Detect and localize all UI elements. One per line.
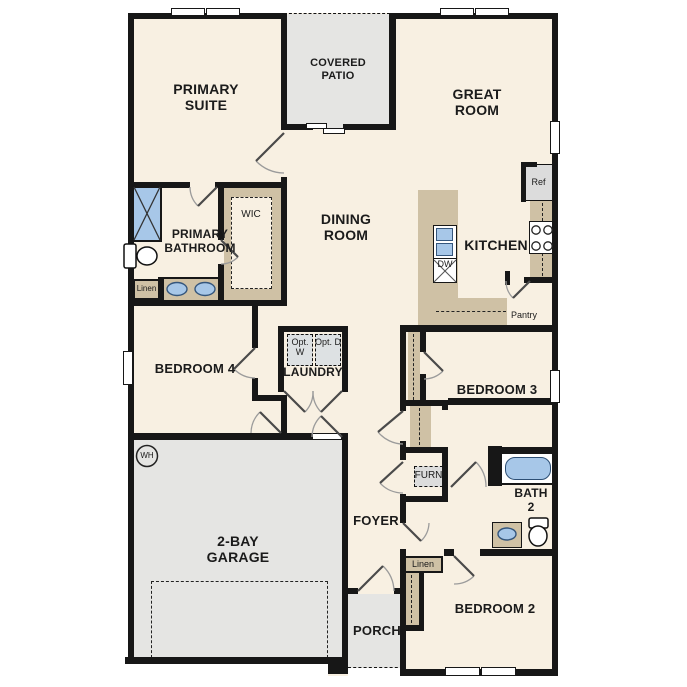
label-bath2: BATH 2	[513, 487, 549, 515]
label-linen-bath: Linen	[133, 284, 160, 293]
label-bedroom3: BEDROOM 3	[441, 383, 553, 398]
label-primary-suite: PRIMARY SUITE	[166, 81, 246, 113]
toilet-icon-bath2	[529, 518, 548, 546]
label-primary-bathroom: PRIMARY BATHROOM	[155, 228, 245, 256]
vanity-sinks-icon	[167, 283, 516, 541]
label-kitchen: KITCHEN	[440, 237, 552, 253]
label-wic: WIC	[231, 209, 271, 221]
label-bedroom2: BEDROOM 2	[439, 602, 551, 617]
label-bedroom4: BEDROOM 4	[139, 362, 251, 377]
label-furnace: FURN	[414, 470, 443, 482]
label-porch: PORCH	[346, 624, 408, 639]
label-foyer: FOYER	[340, 514, 412, 529]
label-pantry: Pantry	[502, 310, 546, 320]
bath2-sink-icon	[498, 528, 516, 540]
toilet-icon-primary	[124, 244, 157, 268]
label-refrigerator: Ref	[523, 177, 554, 187]
label-linen-hall: Linen	[403, 559, 443, 569]
label-laundry: LAUNDRY	[281, 366, 345, 380]
label-garage: 2-BAY GARAGE	[198, 533, 278, 565]
door-swing-layer	[0, 0, 687, 687]
label-great-room: GREAT ROOM	[441, 86, 513, 118]
label-opt-dryer: Opt. D	[315, 337, 341, 347]
label-dishwasher: DW	[433, 259, 457, 269]
floor-plan: PRIMARY SUITE COVERED PATIO GREAT ROOM D…	[0, 0, 687, 687]
label-opt-washer: Opt. W	[287, 337, 313, 358]
label-water-heater: WH	[136, 451, 158, 460]
label-dining-room: DINING ROOM	[310, 211, 382, 243]
label-covered-patio: COVERED PATIO	[303, 57, 373, 82]
